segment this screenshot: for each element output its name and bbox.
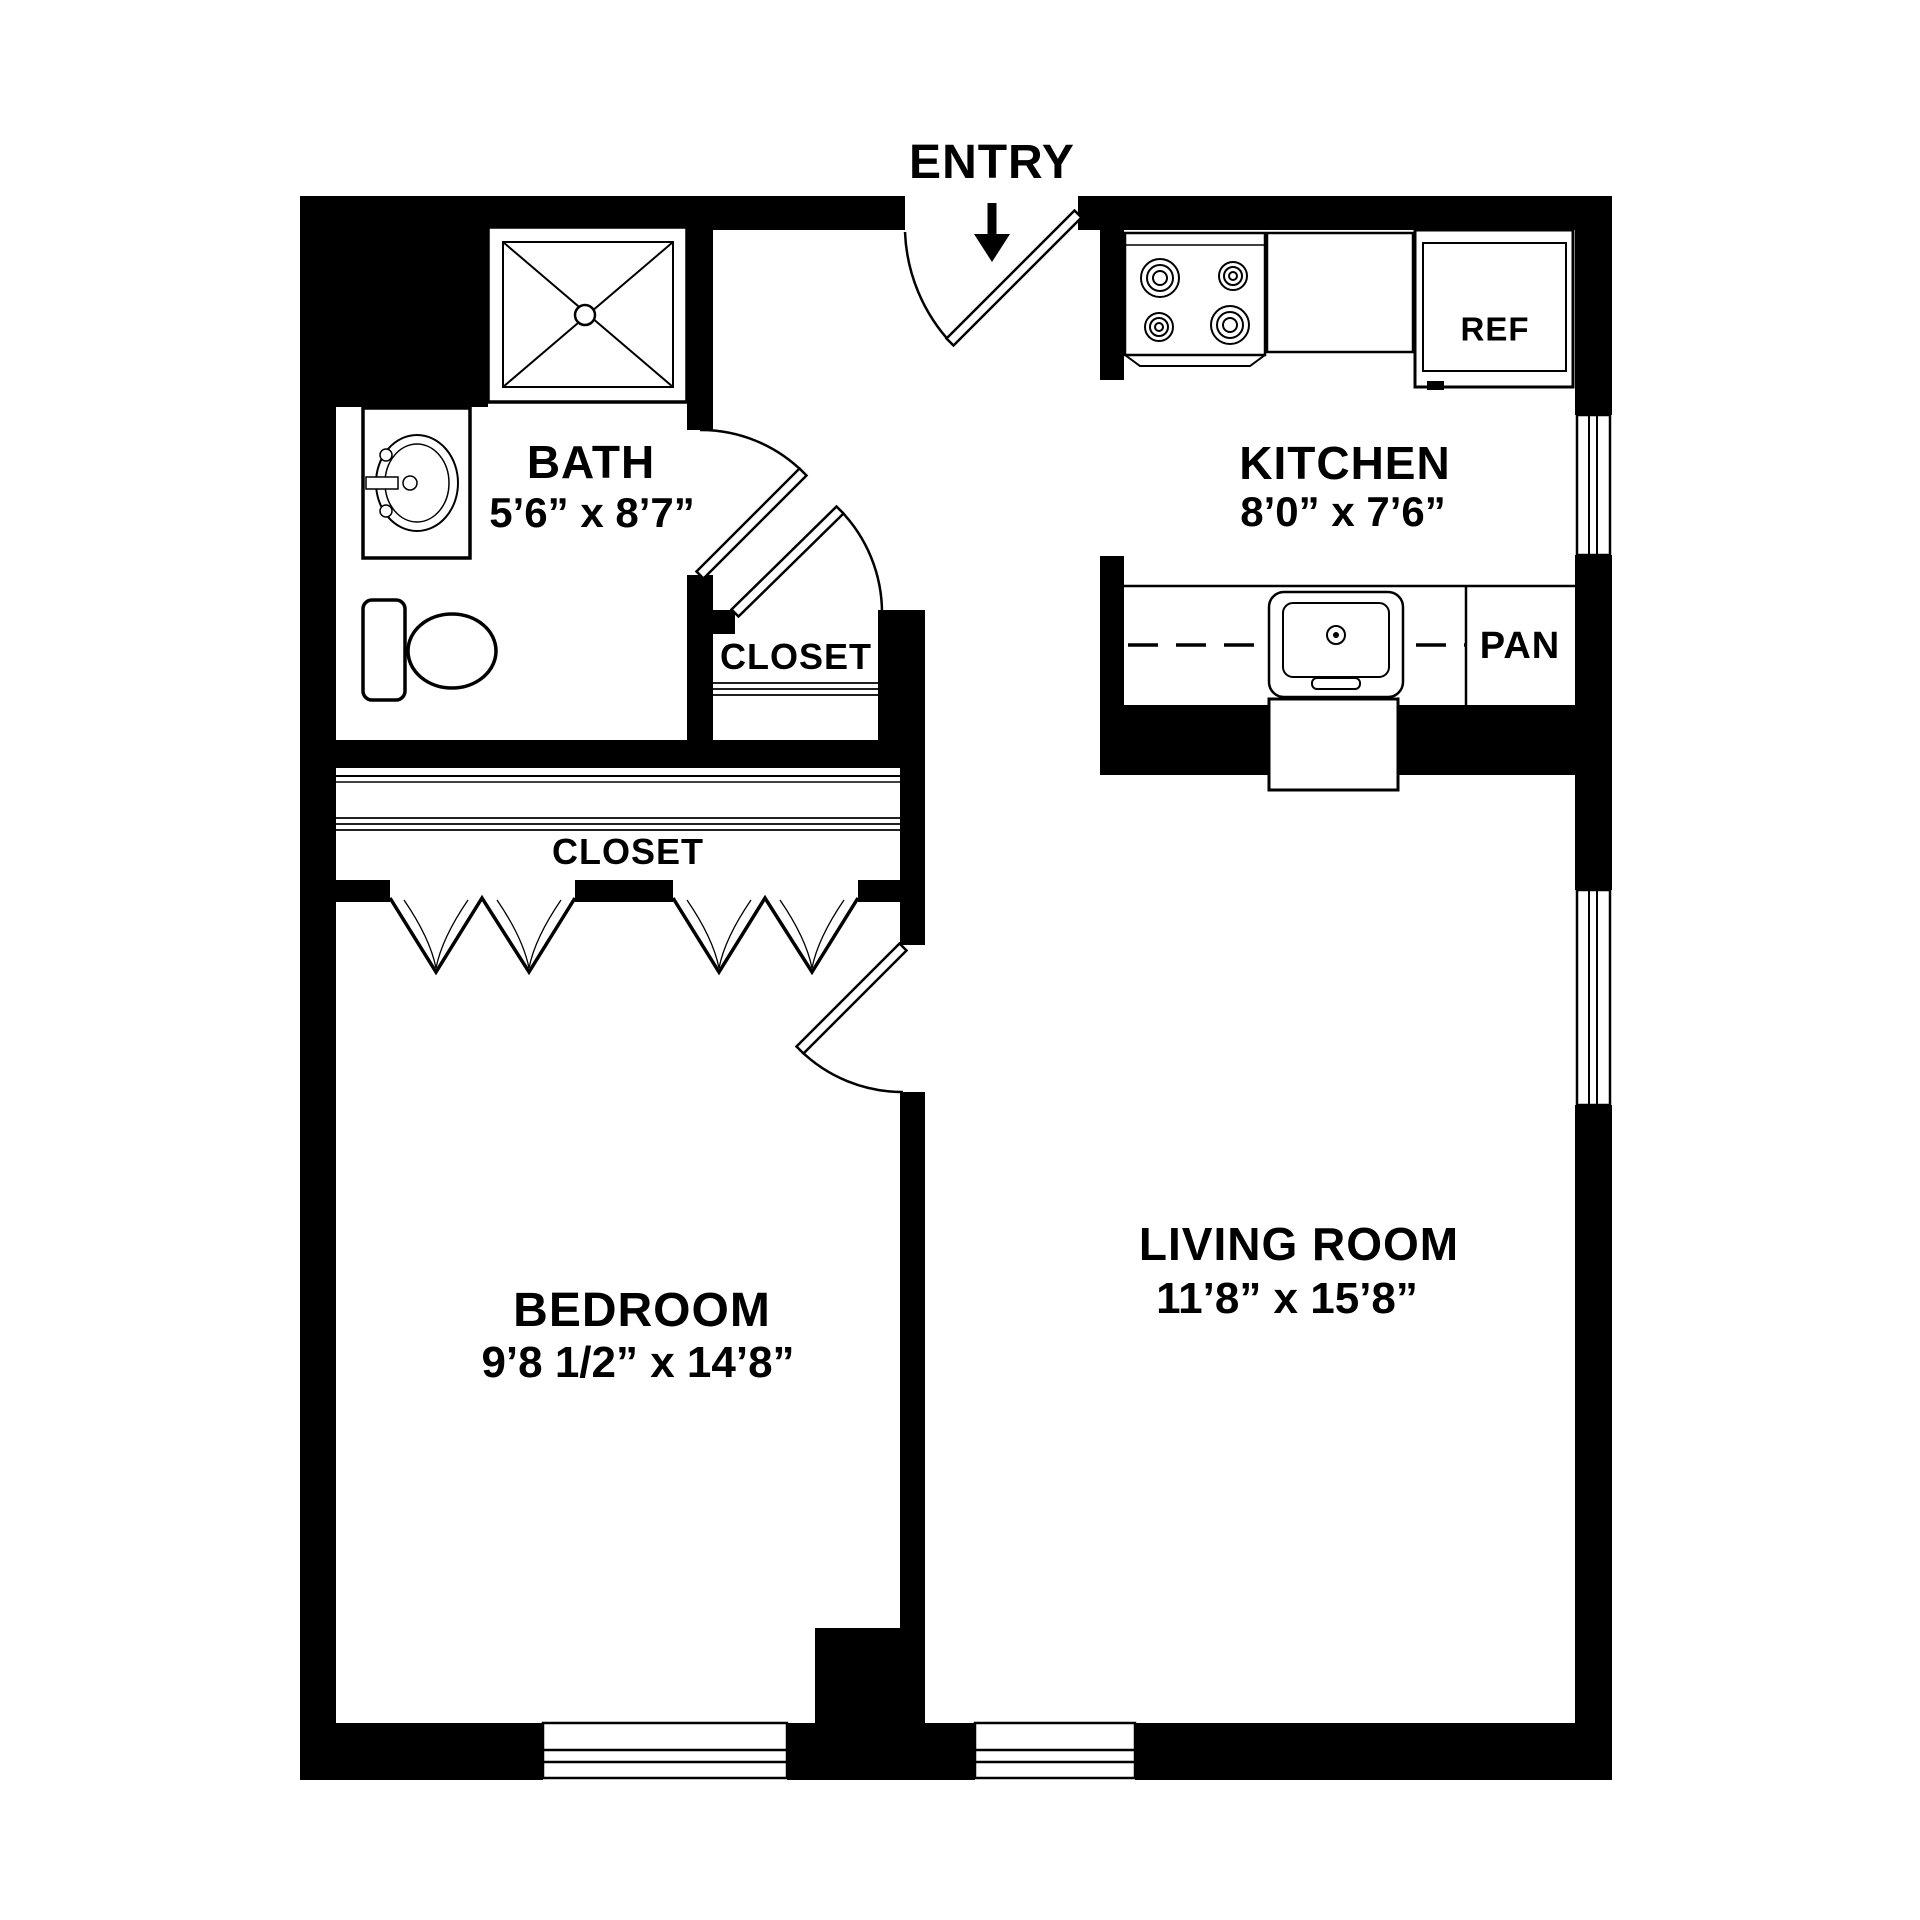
refrigerator-label: REF [1461, 313, 1530, 346]
shower [488, 227, 687, 402]
living-room-label: LIVING ROOM [1139, 1221, 1459, 1267]
stove [1125, 233, 1265, 366]
bedroom-closet-shelf [336, 776, 900, 830]
floor-plan: ENTRY BATH 5’6” x 8’7” CLOSET CLOSET KIT… [0, 0, 1920, 1920]
living-room-dimensions: 11’8” x 15’8” [1156, 1277, 1418, 1321]
living-room-side-window [1577, 890, 1610, 1105]
toilet [363, 600, 496, 700]
hall-closet-label: CLOSET [720, 639, 872, 675]
bath-label: BATH [527, 439, 655, 485]
bedroom-window [543, 1723, 787, 1778]
living-room-window [975, 1723, 1135, 1778]
vanity-sink [363, 408, 470, 558]
kitchen-window [1577, 415, 1610, 555]
kitchen-counter-top [1267, 233, 1413, 352]
entry-arrow-icon [974, 203, 1010, 262]
pantry-label: PAN [1480, 627, 1560, 665]
plan-geometry [0, 0, 1920, 1920]
kitchen-dimensions: 8’0” x 7’6” [1240, 491, 1445, 533]
hall-closet-shelf [713, 683, 878, 695]
bedroom-closet-label: CLOSET [552, 834, 704, 870]
entry-label: ENTRY [909, 139, 1075, 187]
bedroom-dimensions: 9’8 1/2” x 14’8” [481, 1341, 794, 1385]
kitchen-sink [1269, 592, 1403, 697]
dishwasher [1269, 699, 1398, 790]
kitchen-label: KITCHEN [1239, 440, 1450, 486]
bedroom-label: BEDROOM [513, 1287, 771, 1335]
bifold-closet-doors [390, 898, 858, 972]
bath-dimensions: 5’6” x 8’7” [489, 492, 694, 534]
